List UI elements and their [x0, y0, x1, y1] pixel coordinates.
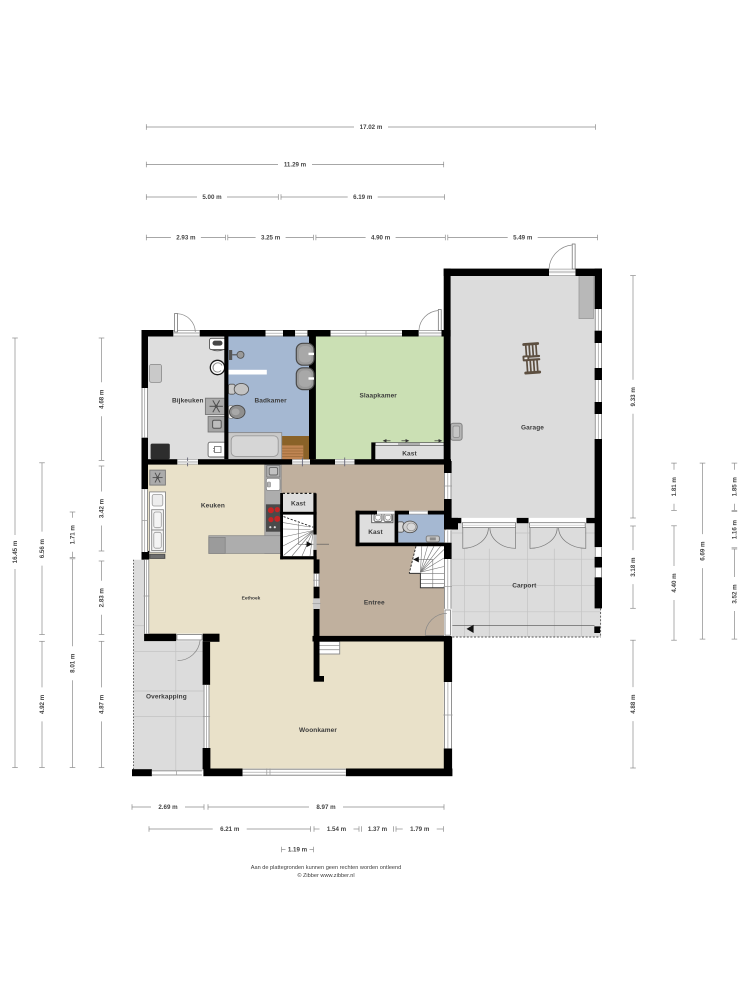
- svg-text:Keuken: Keuken: [201, 503, 225, 510]
- svg-text:Carport: Carport: [512, 582, 537, 589]
- svg-text:8.01 m: 8.01 m: [70, 653, 77, 673]
- svg-text:6.21 m: 6.21 m: [220, 826, 240, 833]
- svg-text:Eethoek: Eethoek: [242, 595, 261, 601]
- svg-text:1.19 m: 1.19 m: [288, 847, 308, 854]
- svg-text:9.33 m: 9.33 m: [630, 387, 637, 407]
- svg-text:3.52 m: 3.52 m: [732, 584, 739, 604]
- svg-text:11.29 m: 11.29 m: [284, 162, 307, 169]
- svg-text:5.49 m: 5.49 m: [513, 235, 533, 242]
- svg-text:© Zibber www.zibber.nl: © Zibber www.zibber.nl: [297, 872, 354, 879]
- svg-text:Kast: Kast: [402, 451, 417, 458]
- svg-text:1.16 m: 1.16 m: [732, 519, 739, 539]
- svg-text:4.88 m: 4.88 m: [630, 694, 637, 714]
- svg-text:6.69 m: 6.69 m: [700, 541, 707, 561]
- svg-text:4.68 m: 4.68 m: [99, 389, 106, 409]
- svg-text:Badkamer: Badkamer: [254, 398, 287, 405]
- svg-text:4.92 m: 4.92 m: [39, 694, 46, 714]
- svg-text:4.40 m: 4.40 m: [671, 573, 678, 593]
- svg-text:17.02 m: 17.02 m: [360, 124, 383, 131]
- svg-text:16.45 m: 16.45 m: [12, 540, 19, 563]
- svg-text:2.69 m: 2.69 m: [158, 804, 178, 811]
- svg-text:Overkapping: Overkapping: [146, 694, 187, 701]
- svg-text:3.25 m: 3.25 m: [261, 235, 281, 242]
- svg-text:1.54 m: 1.54 m: [327, 826, 347, 833]
- svg-text:Aan de plattegronden kunnen ge: Aan de plattegronden kunnen geen rechten…: [251, 865, 402, 871]
- svg-text:Kast: Kast: [291, 501, 306, 508]
- svg-text:Bijkeuken: Bijkeuken: [172, 398, 204, 405]
- svg-text:4.87 m: 4.87 m: [99, 694, 106, 714]
- svg-text:Slaapkamer: Slaapkamer: [359, 393, 397, 400]
- svg-text:Entree: Entree: [364, 599, 385, 606]
- svg-text:2.93 m: 2.93 m: [176, 235, 196, 242]
- svg-text:Woonkamer: Woonkamer: [299, 727, 337, 734]
- svg-text:8.97 m: 8.97 m: [316, 804, 336, 811]
- svg-text:3.42 m: 3.42 m: [99, 498, 106, 518]
- svg-text:1.79 m: 1.79 m: [410, 826, 430, 833]
- svg-text:Kast: Kast: [368, 529, 383, 536]
- svg-text:1.81 m: 1.81 m: [671, 477, 678, 497]
- svg-text:1.71 m: 1.71 m: [70, 525, 77, 545]
- svg-text:Garage: Garage: [521, 424, 544, 431]
- svg-text:3.18 m: 3.18 m: [630, 557, 637, 577]
- svg-text:1.85 m: 1.85 m: [732, 477, 739, 497]
- svg-text:1.37 m: 1.37 m: [368, 826, 388, 833]
- svg-text:6.19 m: 6.19 m: [353, 194, 373, 201]
- svg-text:6.56 m: 6.56 m: [39, 538, 46, 558]
- svg-text:4.90 m: 4.90 m: [371, 235, 391, 242]
- svg-text:2.83 m: 2.83 m: [99, 588, 106, 608]
- svg-text:5.00 m: 5.00 m: [202, 194, 222, 201]
